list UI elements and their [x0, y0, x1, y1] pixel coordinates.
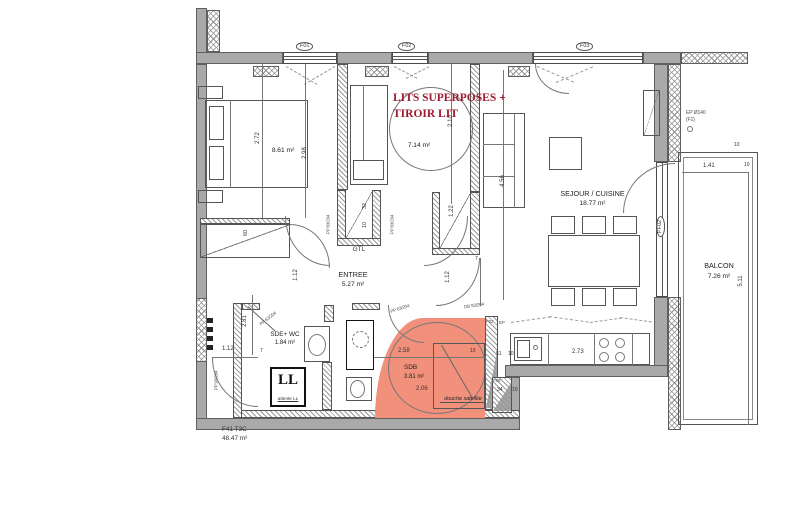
- bed-head-line: [230, 100, 231, 188]
- sde-name: SDE+ WC: [262, 331, 308, 338]
- shower-drain: [352, 331, 369, 348]
- sde-area: 1.84 m²: [262, 340, 308, 346]
- nightstand: [198, 86, 223, 99]
- balcony-dim-line: [682, 172, 748, 173]
- coffee-table: [549, 137, 582, 170]
- dim-tick7a: 7: [260, 348, 263, 354]
- chair: [613, 216, 637, 234]
- hood-dashed-line: [620, 317, 652, 322]
- sdb-wall-top: [352, 303, 380, 310]
- sde-sdb-partition-bottom: [322, 362, 332, 410]
- vent-mark: [365, 66, 389, 77]
- dim-sejour-height: 4.56: [500, 166, 506, 196]
- door-label-pp93: PP 93/204: [214, 363, 219, 399]
- insulation-top-left: [207, 10, 220, 52]
- dim-kitchen-width: 2.73: [572, 349, 584, 355]
- annotation-line1: LITS SUPERPOSES +: [393, 92, 506, 104]
- bedroom2-area: 7.14 m²: [398, 142, 440, 149]
- chair: [551, 288, 575, 306]
- dim-gtl2: 10: [362, 212, 368, 238]
- bunk-bed-drawer: [353, 160, 384, 180]
- chair: [551, 216, 575, 234]
- duct-label-f02: F02: [486, 319, 493, 324]
- pillow: [209, 106, 224, 140]
- dining-table: [548, 235, 640, 287]
- sink-basin: [517, 340, 530, 358]
- attente-mark: [207, 327, 213, 332]
- dim-closet-depth: 60: [243, 220, 249, 246]
- wall-right-lower: [654, 297, 668, 370]
- dim-bed2-depth: 2.10: [448, 106, 454, 136]
- window-tag-f03: F03: [576, 42, 593, 51]
- door-leaf-sejour: [480, 258, 481, 306]
- chair: [582, 288, 606, 306]
- vent-mark: [508, 66, 530, 77]
- nightstand: [198, 190, 223, 203]
- window-tag-f01: F01: [296, 42, 313, 51]
- dim-g10: 10: [508, 351, 514, 357]
- sdb-name: SDB: [404, 364, 434, 371]
- attente-mark: [207, 318, 213, 323]
- dim-sdb-tick: 10: [470, 348, 476, 354]
- bedroom1-area: 8.61 m²: [262, 147, 304, 154]
- ep-circle: [687, 126, 693, 132]
- gtl-label: GTL: [344, 246, 374, 253]
- dim-tick7b: 7: [475, 256, 478, 262]
- tall-cabinet: [643, 90, 660, 136]
- stove-burner: [615, 338, 625, 348]
- window-swing: [304, 66, 336, 85]
- entree-area: 5.27 m²: [330, 281, 376, 288]
- sejour-name: SEJOUR / CUISINE: [545, 189, 640, 198]
- apartment-total-area: 48.47 m²: [222, 435, 247, 442]
- wall-top-a: [196, 52, 283, 64]
- dim-balcon-tick2: 10: [734, 142, 740, 148]
- dim-g10b: 10: [512, 387, 518, 393]
- dim-closet2: 1.22: [449, 196, 455, 226]
- door-label-pp83-right: PP 83/204: [390, 207, 395, 243]
- dim-sdb-height: 2.06: [416, 386, 428, 392]
- hood-dashed-line: [549, 316, 589, 323]
- washing-machine-label: LL: [270, 372, 306, 390]
- faucet: [533, 345, 538, 350]
- dim-corridor: 2.81: [242, 306, 248, 336]
- stove-burner: [599, 338, 609, 348]
- attente-mark: [207, 345, 213, 350]
- dim-balcon-width: 1.41: [703, 163, 715, 169]
- floor-plan: F01 F02 F03 PF02: [0, 0, 800, 505]
- door-arc-corridor: [212, 358, 258, 407]
- counter-divider: [548, 333, 549, 365]
- duct-label-ep: EP: [499, 320, 505, 325]
- door-arc-sejour: [436, 258, 480, 306]
- window-swing: [286, 66, 318, 85]
- entree-name: ENTREE: [330, 270, 376, 279]
- sofa-cushion-line: [483, 144, 514, 145]
- gtl-wall-bottom: [337, 238, 381, 246]
- sejour-area: 18.77 m²: [545, 200, 640, 207]
- partition-bed1-bed2: [337, 64, 348, 190]
- dim-line: [262, 64, 263, 218]
- dim-balcon-depth: 5.11: [738, 266, 744, 296]
- ep-note-line2: (F1): [686, 117, 695, 123]
- stove-burner: [615, 352, 625, 362]
- dim-g51: 51: [496, 351, 502, 357]
- insulation-top-right: [681, 52, 748, 64]
- balcony-door-tag: PF02: [656, 216, 665, 237]
- sofa-cushion-line: [483, 176, 514, 177]
- dim-balcon-tick1: 10: [744, 162, 750, 168]
- pillow: [209, 146, 224, 180]
- insulation-left: [196, 298, 207, 362]
- door-label-pp83-left: PP 83/204: [326, 207, 331, 243]
- stove-burner: [599, 352, 609, 362]
- dim-sdb-width: 2.58: [398, 348, 410, 354]
- window-tag-f02: F02: [398, 42, 415, 51]
- toilet-bowl: [350, 380, 365, 398]
- insulation-right-upper: [668, 64, 681, 162]
- sde-sdb-partition-top: [324, 305, 334, 322]
- sofa-back-line: [514, 113, 515, 208]
- ep-note-line1: EP Ø140: [686, 110, 706, 116]
- dim-door2: 1.12: [445, 262, 451, 292]
- hood-dashed-line: [511, 316, 551, 323]
- dim-bed1-length: 2.98: [302, 138, 308, 168]
- dim-line: [252, 295, 253, 355]
- door-label-db93: DB 93/204: [464, 302, 484, 310]
- counter-divider: [632, 333, 633, 365]
- window-f02: [392, 52, 428, 64]
- attente-mark: [207, 336, 213, 341]
- chair: [582, 216, 606, 234]
- vent-mark: [253, 66, 279, 77]
- hood-dashed-line: [590, 318, 622, 323]
- dim-line: [748, 172, 749, 425]
- sdb-note: douche satellite: [440, 396, 486, 403]
- chair: [613, 288, 637, 306]
- counter-divider: [594, 333, 595, 365]
- dim-door1: 1.12: [293, 260, 299, 290]
- dim-g34: 34: [497, 387, 503, 393]
- bunk-bed-line: [363, 85, 364, 160]
- closet2-wall-right: [470, 192, 480, 254]
- window-f01: [283, 52, 337, 64]
- duct-label-f08: F08: [493, 378, 500, 383]
- wall-kitchen-bottom: [505, 365, 668, 377]
- gtl-duct-diagonal: [346, 192, 372, 238]
- wall-top-d: [643, 52, 681, 64]
- door-arc-window-f03: [535, 64, 569, 94]
- sdb-area: 3.81 m²: [404, 374, 440, 380]
- dim-door3: 1.12: [222, 346, 234, 352]
- window-f03: [533, 52, 643, 64]
- washing-machine-note: attente LL: [270, 396, 306, 403]
- dim-bed1-width: 2.72: [255, 123, 261, 153]
- washbasin-bowl: [308, 334, 326, 356]
- wall-top-b: [337, 52, 392, 64]
- wall-top-c: [428, 52, 533, 64]
- apartment-code: F41 T3C: [222, 426, 247, 433]
